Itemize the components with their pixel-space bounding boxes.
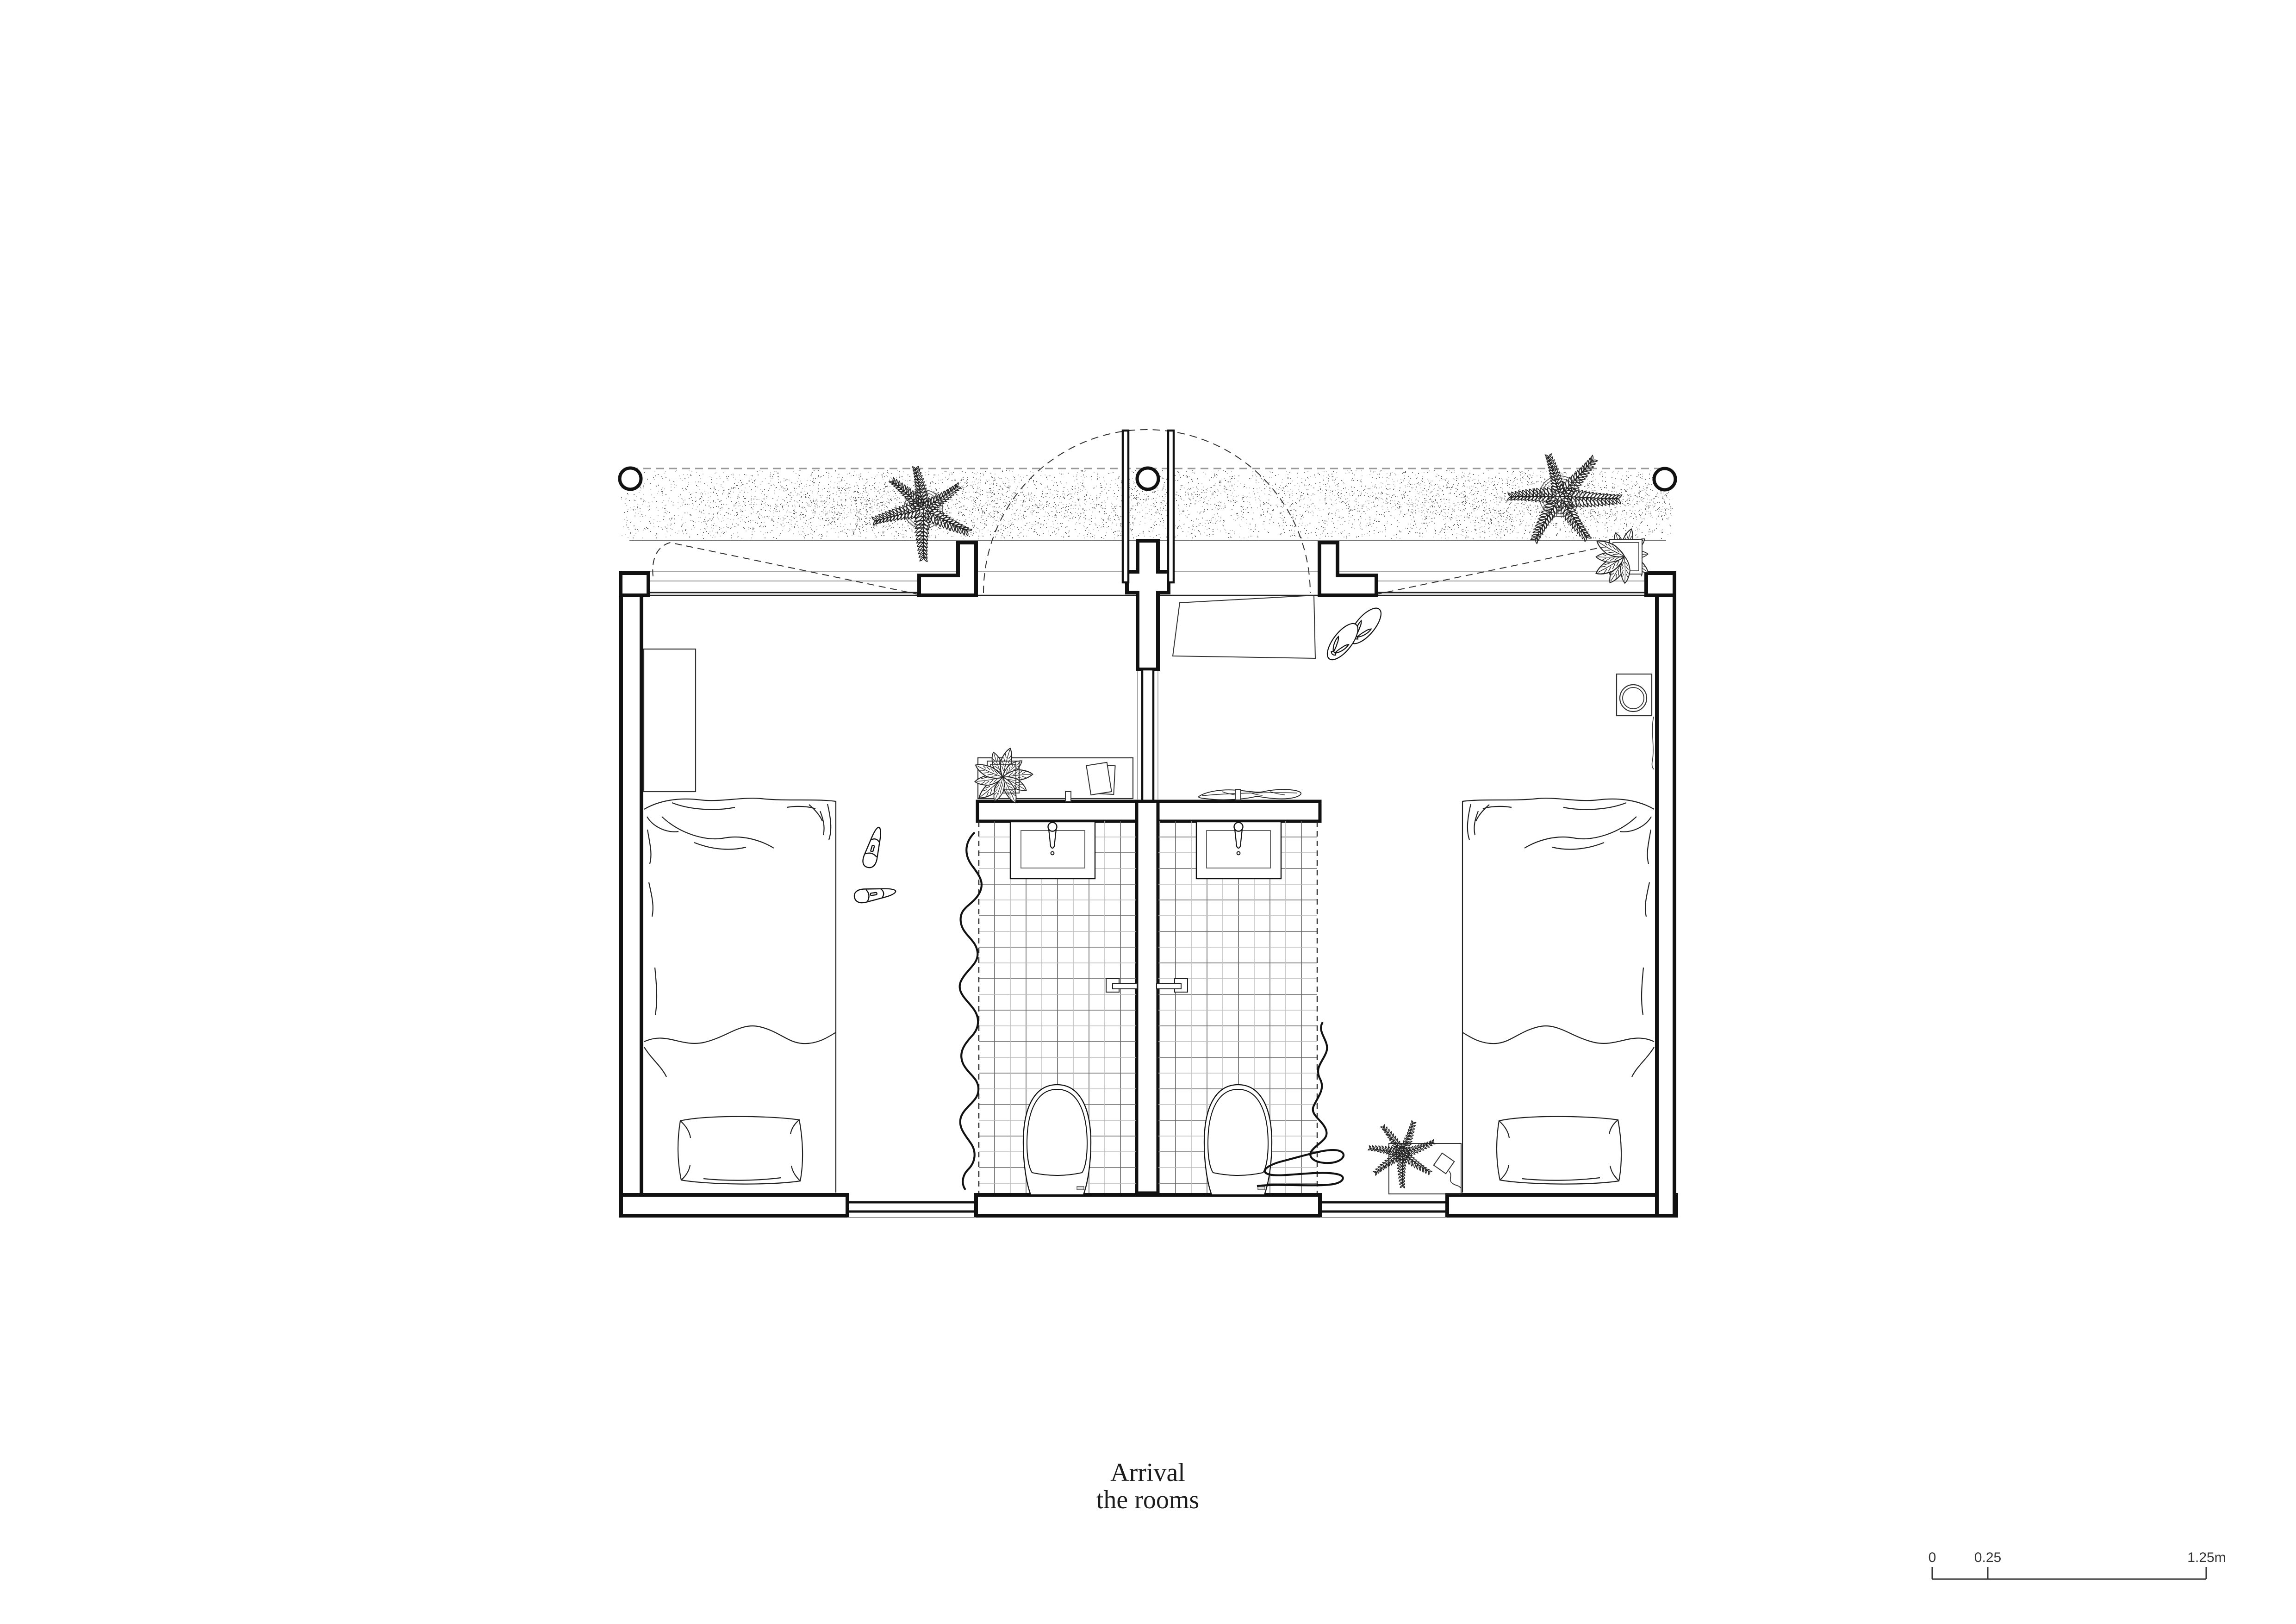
svg-text:the rooms: the rooms	[1096, 1486, 1199, 1514]
svg-text:0: 0	[1929, 1550, 1936, 1565]
svg-text:0.25: 0.25	[1974, 1550, 2001, 1565]
svg-text:1.25m: 1.25m	[2187, 1550, 2226, 1565]
svg-text:Arrival: Arrival	[1110, 1458, 1185, 1487]
